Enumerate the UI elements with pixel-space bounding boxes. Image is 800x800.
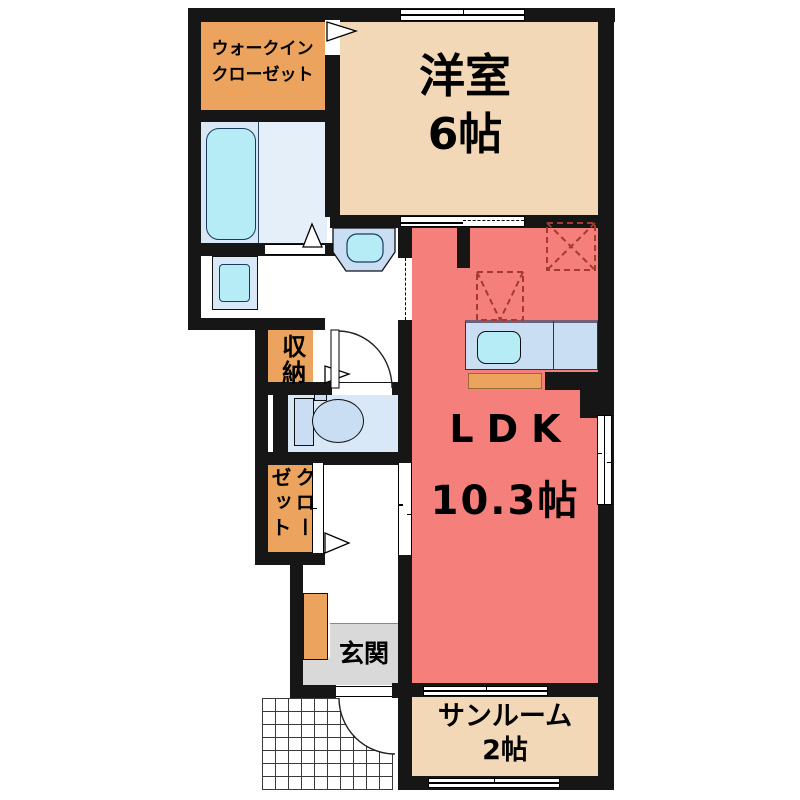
bathroom-floor-right <box>258 122 327 243</box>
washing-machine-pan <box>212 256 258 310</box>
washbasin-bowl <box>347 234 383 262</box>
window-tick <box>463 9 464 14</box>
genkan-floor-side <box>303 658 330 685</box>
kitchen-counter-divider <box>553 321 554 369</box>
wall-toilet-bottom <box>255 452 412 465</box>
sliding-dash-line <box>405 258 406 320</box>
window-sash-line <box>428 782 560 783</box>
label-entrance: 玄関 <box>330 640 398 669</box>
label-storage: 収納 <box>277 334 305 386</box>
wall-stub-ldk-top <box>457 228 470 268</box>
sliding-door-tick <box>398 504 403 505</box>
label-ldk-name: LDK <box>412 408 598 452</box>
window-sash-line <box>423 690 548 691</box>
kitchen-sink <box>477 331 521 364</box>
toilet-bowl <box>312 399 364 443</box>
label-western-size: 6帖 <box>340 110 590 161</box>
label-ldk-size: 10.3帖 <box>412 478 598 524</box>
wall-left-lower <box>290 555 303 698</box>
bathtub <box>206 128 256 240</box>
toilet-door-arc <box>339 331 392 388</box>
sliding-panel-right <box>463 220 525 221</box>
window-sash-line <box>604 415 605 505</box>
porch-tiles <box>262 698 393 790</box>
bathroom-door <box>265 244 325 255</box>
wall-left-mid <box>255 318 268 565</box>
toilet-door-leaf <box>331 330 339 388</box>
wall-genkan-bottom <box>290 685 336 698</box>
sliding-door-hall-ldk <box>398 463 412 555</box>
label-walk-in-closet: ウォークイン クローゼット <box>200 36 325 89</box>
sliding-door-western-ldk <box>400 216 525 227</box>
label-western-name: 洋室 <box>340 50 590 103</box>
washing-machine <box>219 264 250 302</box>
window-sunroom-bottom <box>428 778 560 788</box>
label-closet: クローゼット <box>268 467 316 551</box>
toilet-door-gap <box>332 383 392 395</box>
sliding-door-washroom-ldk <box>398 258 412 320</box>
room-ldk <box>412 228 598 683</box>
sliding-window-ldk-sunroom <box>423 686 548 696</box>
window-western-top <box>400 9 525 21</box>
window-ldk-right <box>597 415 612 505</box>
washbasin <box>333 228 395 271</box>
door-pennant-closet <box>325 533 349 553</box>
wall-wic-bottom <box>188 110 340 122</box>
sliding-panel-left <box>401 222 463 223</box>
door-pennant-toilet <box>325 366 349 383</box>
label-wic-line2: クローゼット <box>200 62 325 88</box>
wall-wic-right <box>325 55 340 217</box>
window-sash-line <box>400 14 525 15</box>
wall-right <box>598 8 614 790</box>
window-tick <box>486 685 487 690</box>
entrance-door-opening <box>336 686 392 697</box>
window-tick <box>597 453 602 454</box>
toilet-tank <box>294 398 314 446</box>
wall-toilet-left <box>273 392 288 452</box>
window-tick <box>494 777 495 782</box>
label-wic-line1: ウォークイン <box>200 36 325 62</box>
wall-sunroom-left <box>398 690 412 790</box>
window-tick2 <box>607 462 612 463</box>
label-sunroom-size: 2帖 <box>412 735 598 766</box>
floor-plan: ウォークイン クローゼット 洋室 6帖 LDK 10.3帖 サンルーム 2帖 収… <box>0 0 800 800</box>
shoe-cabinet <box>303 593 328 660</box>
kitchen-cabinet-bar <box>468 373 542 389</box>
wic-door-gap <box>325 20 340 55</box>
label-sunroom-name: サンルーム <box>412 701 598 732</box>
